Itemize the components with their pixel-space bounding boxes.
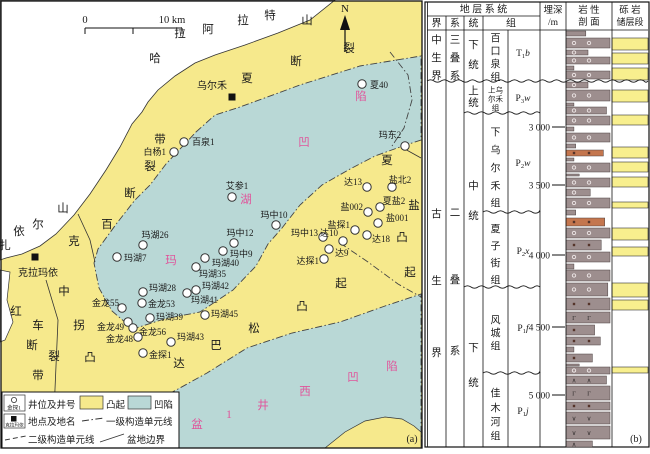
gravel-symbol [588, 244, 590, 246]
tectonic-name-char: 裂 [48, 350, 60, 363]
header-depth-unit: /m [548, 18, 559, 28]
legend-sag-text: 凹陷 [154, 399, 173, 411]
formation-name-char: 尔 [491, 162, 501, 175]
well-marker [201, 311, 209, 319]
reservoir-interval-block [612, 283, 648, 297]
formation-name-char: 泉 [491, 58, 501, 71]
tectonic-name-char: 起 [335, 277, 347, 290]
well-marker [363, 183, 371, 191]
depth-tick-label: 3 500 [529, 182, 551, 192]
header-lithology: 剖 面 [578, 16, 599, 28]
well-label: 玛湖39 [156, 312, 184, 322]
legend-first-order-text: 一级构造单元线 [106, 416, 173, 428]
tectonic-name-char: 克 [68, 235, 80, 248]
depth-tick-label: 3 000 [529, 124, 551, 134]
formation-code: P2w [516, 159, 532, 170]
tectonic-name-char: 凸 [84, 352, 96, 364]
well-marker [401, 142, 409, 150]
legend-sag-swatch [128, 396, 151, 409]
well-label: 玛湖42 [202, 281, 229, 291]
well-label: 玛湖41 [191, 295, 218, 305]
series-cell-char: 中 [468, 179, 479, 192]
north-label: N [341, 3, 349, 15]
well-marker [138, 299, 146, 307]
era-cell-char: 古 [431, 207, 442, 220]
series-cell-char: 下 [468, 343, 479, 354]
strat-column-panel: ΓΓ∧∧ΓΓ∨∨∨∨∧地 层 系 统界系统组埋深/m岩 性剖 面砾 岩储层段中生… [425, 2, 649, 449]
header-strata-system: 地 层 系 统 [460, 3, 508, 16]
map-panel: 010 kmN哈拉阿拉特山扎依尔山克百断裂带夏断裂红车断裂带中拐凸夏盐凸起达巴松… [0, 0, 422, 448]
tectonic-name-char: 车 [32, 318, 44, 332]
formation-name-char: 夏 [491, 224, 501, 236]
era-cell-char: 中 [431, 33, 442, 46]
legend-town-symbol-label: 克拉玛依 [5, 422, 24, 429]
tectonic-name-char: 起 [404, 266, 416, 279]
well-label: 玛中10 [260, 209, 288, 220]
header-system: 系 [450, 18, 460, 30]
formation-name-char: 佳 [491, 387, 501, 400]
volcanic-symbol: ∨ [587, 430, 592, 437]
well-marker [358, 80, 366, 88]
tectonic-name-char: 裂 [343, 42, 355, 55]
formation-name-char: 口 [491, 47, 501, 58]
well-marker [180, 138, 188, 146]
gravel-symbol [588, 152, 590, 154]
gravel-symbol [588, 340, 590, 342]
gravel-symbol [573, 244, 575, 246]
series-cell-char: 统 [468, 96, 479, 109]
header-reservoir: 储层段 [616, 16, 643, 27]
scale-zero-label: 0 [82, 15, 87, 26]
depth-tick-label: 4 500 [529, 324, 551, 334]
lith-bed [566, 337, 600, 345]
tectonic-name-char: 夏 [241, 72, 253, 85]
volcanic-symbol: Γ [587, 391, 591, 398]
lith-bed [566, 144, 576, 148]
formation-name-char: 街 [491, 257, 501, 270]
lith-bed [566, 150, 603, 156]
header-depth: 埋深 [543, 5, 563, 16]
formation-name-char: 组 [491, 430, 501, 443]
reservoir-interval-block [612, 90, 648, 102]
series-cell-char: 统 [468, 58, 479, 71]
lith-bed [566, 347, 574, 352]
well-label: 玛湖35 [199, 269, 227, 279]
tectonic-name-char: 裂 [144, 160, 156, 173]
well-marker [339, 237, 347, 245]
gravel-symbol [588, 221, 590, 223]
well-marker [364, 208, 372, 216]
series-cell-char: 上 [468, 85, 479, 97]
series-cell-char: 统 [468, 376, 479, 389]
header-series: 统 [469, 17, 479, 30]
lith-bed [566, 364, 579, 366]
well-label: 玛中12 [226, 227, 253, 238]
legend-well-icon [11, 397, 16, 402]
well-label: 玛东2 [379, 129, 402, 140]
lith-bed [566, 66, 574, 70]
legend-second-order-text: 二级构造单元线 [28, 434, 95, 446]
tectonic-name-char: 山 [301, 14, 313, 27]
lith-bed [566, 127, 574, 131]
tectonic-name-char: 拉 [174, 26, 186, 40]
system-cell-char: 二 [450, 208, 461, 219]
well-marker [139, 288, 147, 296]
tectonic-name-char: 达 [173, 356, 185, 370]
well-label: 玛湖45 [211, 309, 239, 319]
formation-name-char: 组 [491, 71, 501, 84]
well-label: 金龙55 [92, 297, 120, 308]
map-legend: 金探1井位及井号凸起凹陷克拉玛依地点及地名一级构造单元线二级构造单元线盆地边界 [2, 392, 179, 448]
gravel-symbol [573, 405, 575, 407]
reservoir-interval-block [612, 68, 648, 80]
formation-name-char: 尔禾 [488, 94, 503, 104]
sag-name-char: 陷 [355, 89, 367, 103]
tectonic-name-char: 断 [124, 186, 136, 200]
system-cell-char: 三 [450, 35, 461, 46]
sag-name-char: 西 [299, 386, 311, 398]
formation-name-char: 禾 [491, 181, 501, 193]
well-marker [374, 219, 382, 227]
tectonic-name-char: 山 [57, 202, 69, 215]
series-cell-char: 统 [468, 209, 479, 222]
well-marker [139, 349, 147, 357]
sag-name-char: 玛 [165, 254, 177, 267]
well-label: 玛湖26 [141, 230, 169, 240]
tectonic-name-char: 阿 [202, 23, 214, 36]
tectonic-name-char: 巴 [210, 340, 222, 352]
tectonic-name-char: 盐 [408, 199, 420, 212]
tectonic-name-char: 凸 [296, 301, 308, 313]
formation-name-char: 下 [491, 128, 501, 139]
reservoir-interval-block [612, 247, 648, 256]
tectonic-name-char: 依 [13, 224, 25, 238]
well-marker [170, 148, 178, 156]
well-marker [320, 255, 328, 263]
well-label: 玛湖28 [149, 283, 177, 293]
volcanic-symbol: ∧ [572, 378, 577, 385]
lith-bed [566, 82, 588, 88]
volcanic-symbol: Γ [572, 315, 576, 322]
system-cell-char: 叠 [450, 274, 461, 286]
well-marker [272, 221, 280, 229]
well-label: 盐002 [340, 201, 363, 212]
well-label: 达13 [344, 176, 363, 187]
gravel-symbol [573, 329, 575, 331]
lith-bed [566, 354, 592, 362]
lith-bed [566, 103, 574, 106]
well-label: 金龙56 [139, 326, 167, 337]
tectonic-name-char: 尔 [32, 217, 44, 231]
well-label: 金探1 [149, 349, 172, 360]
legend-basin-boundary-text: 盆地边界 [127, 434, 166, 446]
well-label: 金龙49 [97, 321, 125, 332]
well-marker [230, 239, 238, 247]
figure-canvas: 010 kmN哈拉阿拉特山扎依尔山克百断裂带夏断裂红车断裂带中拐凸夏盐凸起达巴松… [0, 0, 650, 449]
well-marker [113, 253, 121, 261]
volcanic-symbol: ∨ [572, 430, 577, 437]
sag-name-char: 陷 [386, 359, 398, 373]
system-cell-char: 系 [450, 70, 461, 82]
well-label: 夏盐2 [383, 195, 406, 206]
well-label: 达探1 [296, 255, 319, 266]
gravel-symbol [573, 340, 575, 342]
volcanic-symbol: ∧ [572, 442, 577, 449]
well-label: 百泉1 [192, 136, 215, 147]
header-reservoir: 砾 岩 [619, 4, 640, 16]
lith-bed [566, 264, 574, 269]
tectonic-name-char: 百 [101, 219, 113, 231]
gravel-symbol [573, 357, 575, 359]
well-marker [167, 338, 175, 346]
reservoir-interval-block [612, 177, 648, 187]
series-cell-char: 下 [468, 40, 479, 51]
header-lithology: 岩 性 [578, 4, 600, 16]
tectonic-name-char: 特 [264, 8, 276, 22]
well-label: 金龙48 [106, 333, 134, 344]
well-label: 玛湖43 [177, 332, 205, 342]
well-marker [325, 245, 333, 253]
header-era: 界 [432, 18, 442, 30]
sag-name-char: 1 [226, 409, 232, 421]
well-marker [146, 314, 154, 322]
legend-well-text: 井位及井号 [28, 399, 76, 411]
lith-bed [566, 240, 601, 250]
reservoir-interval-block [612, 367, 648, 373]
era-cell-char: 生 [431, 274, 442, 287]
lith-bed [566, 218, 605, 226]
gravel-symbol [573, 221, 575, 223]
well-label: 盐001 [386, 212, 409, 223]
system-cell-char: 系 [450, 345, 461, 357]
well-label: 玛中13 [291, 227, 319, 238]
volcanic-symbol: ∨ [572, 416, 577, 423]
formation-name-char: 子 [491, 241, 501, 253]
well-label: 达18 [372, 233, 391, 244]
reservoir-interval-block [612, 53, 648, 64]
well-label: 盐北2 [389, 174, 412, 185]
tectonic-name-char: 凸 [396, 232, 408, 244]
legend-well-symbol-label: 金探1 [7, 404, 21, 412]
sag-name-char: 盆 [191, 417, 203, 431]
well-marker [134, 333, 142, 341]
reservoir-interval-block [612, 300, 648, 310]
sag-name-char: 凹 [298, 137, 310, 149]
formation-name-char: 木 [491, 403, 501, 415]
reservoir-interval-block [612, 162, 648, 172]
legend-town-icon [11, 416, 17, 422]
formation-name-char: 城 [491, 328, 501, 340]
well-marker [183, 289, 191, 297]
tectonic-name-char: 拐 [73, 318, 85, 332]
volcanic-symbol: Γ [572, 391, 576, 398]
reservoir-interval-block [612, 115, 648, 125]
gravel-symbol [588, 303, 590, 305]
lith-bed [566, 31, 586, 36]
formation-name-char: 百 [491, 33, 501, 45]
tectonic-name-char: 拉 [237, 13, 249, 27]
well-marker [201, 254, 209, 262]
era-cell-char: 界 [431, 347, 442, 359]
panel-a-label: (a) [406, 434, 417, 445]
well-marker [118, 304, 126, 312]
well-label: 达10 [320, 227, 339, 238]
town-label: 克拉玛依 [18, 266, 58, 279]
lith-bed [566, 210, 576, 215]
scale-distance-label: 10 km [159, 15, 186, 26]
town-marker [229, 94, 236, 101]
town-marker [32, 254, 39, 261]
well-marker [219, 247, 227, 255]
tectonic-name-char: 断 [290, 54, 302, 68]
lith-bed [566, 441, 592, 447]
formation-name-char: 组 [491, 340, 501, 353]
formation-code: P3w [516, 94, 532, 105]
sag-name-char: 凹 [347, 372, 359, 384]
well-label: 白杨1 [143, 146, 166, 157]
volcanic-symbol: ∨ [587, 416, 592, 423]
well-marker [363, 231, 371, 239]
well-marker [228, 193, 236, 201]
era-cell-char: 界 [431, 70, 442, 82]
geological-figure: 010 kmN哈拉阿拉特山扎依尔山克百断裂带夏断裂红车断裂带中拐凸夏盐凸起达巴松… [0, 0, 650, 449]
reservoir-interval-block [612, 202, 648, 208]
volcanic-symbol: ∧ [587, 378, 592, 385]
reservoir-interval-block [612, 147, 648, 158]
tectonic-name-char: 断 [26, 338, 38, 352]
formation-name-char: 乌 [491, 144, 501, 157]
formation-name-char: 组 [491, 197, 501, 210]
formation-name-char: 组 [492, 103, 500, 113]
lith-bed [566, 50, 588, 55]
well-label: 玛湖40 [212, 258, 240, 268]
sag-name-char: 井 [257, 398, 269, 412]
lith-bed [566, 189, 590, 196]
legend-town-text: 地点及地名 [28, 416, 76, 428]
panel-b-label: (b) [630, 434, 642, 445]
well-marker [192, 286, 200, 294]
tectonic-name-char: 松 [248, 321, 260, 335]
header-formation: 组 [506, 17, 516, 30]
well-label: 玛湖7 [124, 253, 147, 263]
tectonic-name-char: 带 [32, 369, 44, 382]
well-label: 达9 [335, 247, 349, 258]
lith-bed [566, 174, 579, 176]
tectonic-name-char: 中 [58, 285, 70, 298]
gravel-symbol [573, 303, 575, 305]
well-label: 艾参1 [226, 180, 249, 191]
volcanic-symbol: Γ [587, 315, 591, 322]
formation-name-char: 河 [491, 417, 501, 429]
formation-name-char: 风 [491, 315, 501, 327]
reservoir-interval-block [612, 38, 648, 50]
tectonic-name-char: 带 [154, 133, 166, 146]
formation-name-char: 上乌 [488, 85, 503, 95]
lith-bed [566, 325, 595, 335]
well-label: 夏40 [370, 80, 389, 90]
well-marker [129, 324, 137, 332]
gravel-symbol [588, 405, 590, 407]
well-marker [351, 226, 359, 234]
tectonic-name-char: 夏 [381, 154, 393, 167]
legend-uplift-swatch [80, 396, 103, 409]
lith-bed [566, 158, 574, 161]
legend-uplift-text: 凸起 [106, 400, 126, 411]
depth-tick-label: 4 000 [529, 252, 551, 262]
depth-tick-label: 5 000 [529, 392, 551, 402]
gravel-symbol [573, 152, 575, 154]
era-cell-char: 生 [431, 51, 442, 64]
reservoir-interval-block [612, 228, 648, 240]
sag-name-char: 湖 [240, 192, 252, 206]
well-label: 金龙53 [148, 298, 176, 309]
formation-name-char: 组 [491, 274, 501, 287]
tectonic-name-char: 哈 [149, 52, 161, 65]
system-cell-char: 叠 [450, 52, 461, 64]
town-label: 乌尔禾 [197, 79, 227, 92]
well-marker [139, 241, 147, 249]
tectonic-name-char: 红 [10, 305, 22, 318]
